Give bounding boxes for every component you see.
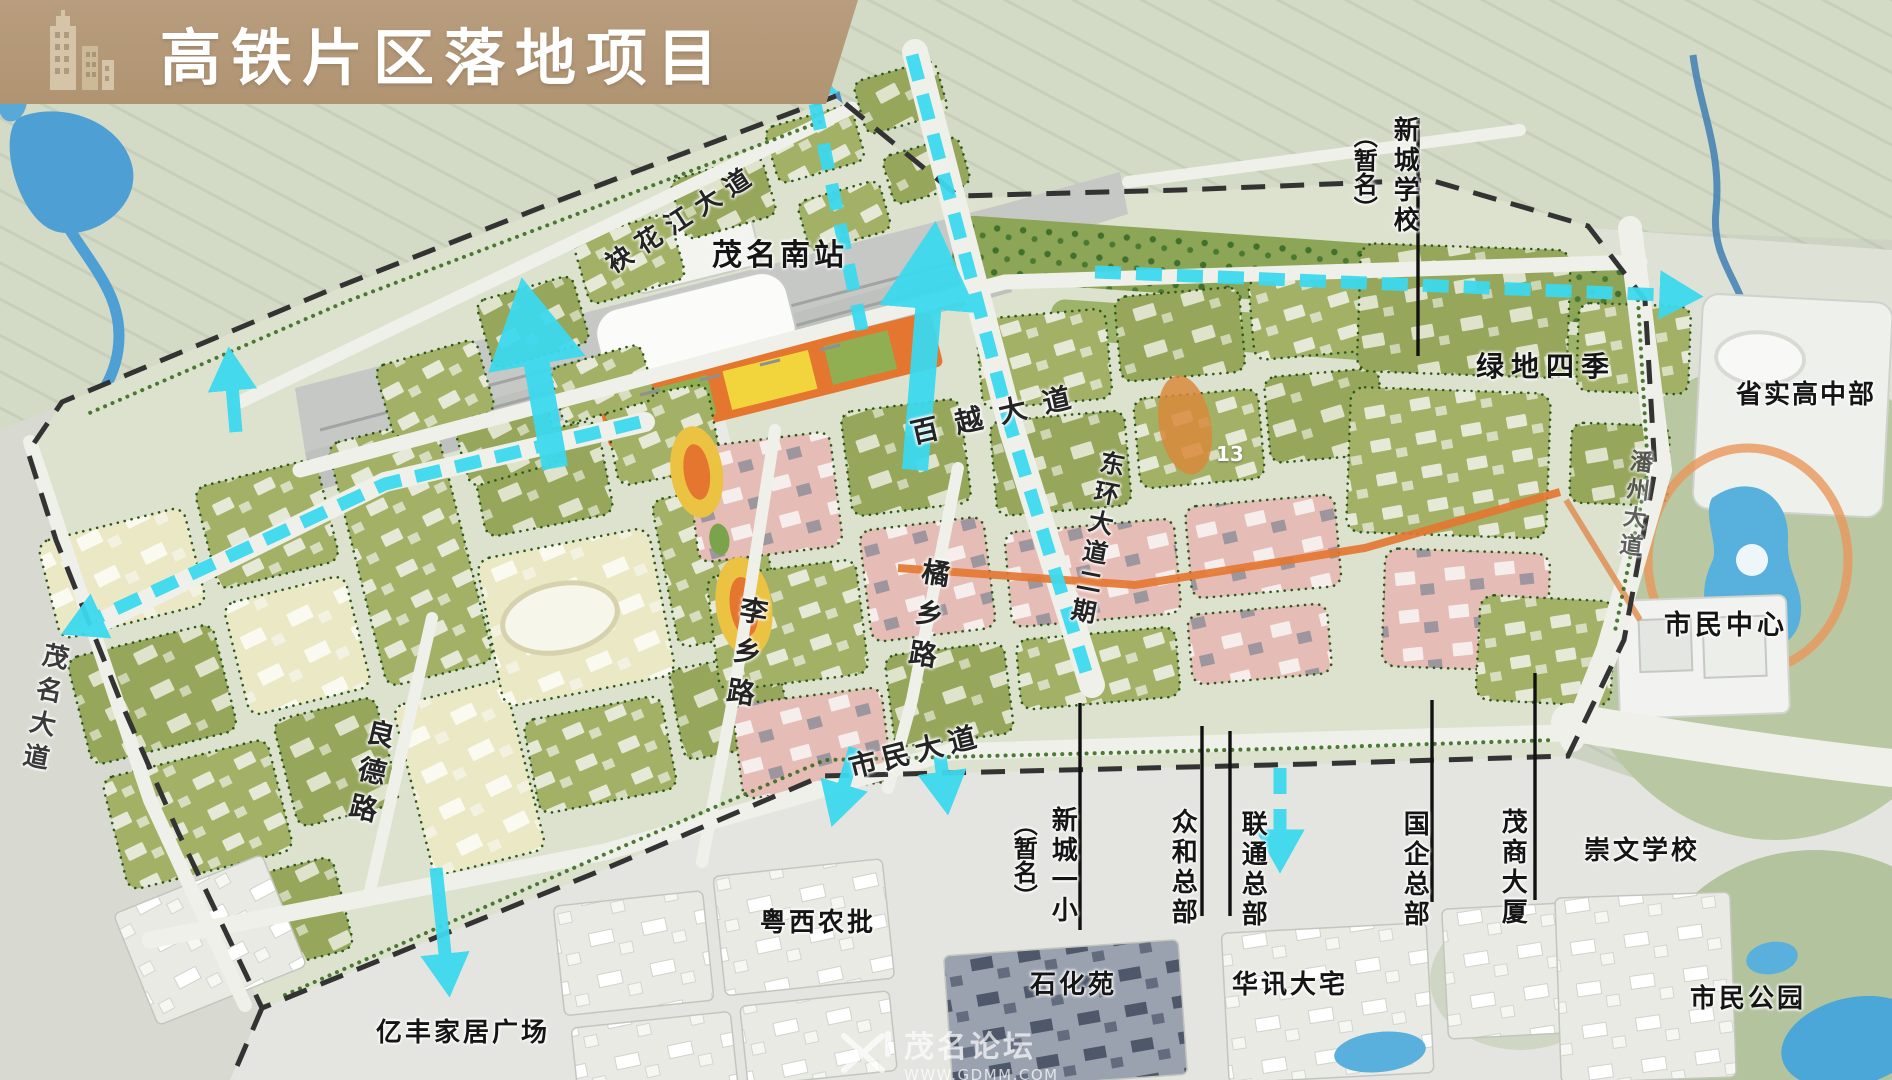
station-label: 茂名南站 bbox=[712, 240, 848, 272]
watermark-site-name: 茂名论坛 bbox=[904, 1022, 1059, 1066]
callout-maoshang-tower: 茂商大厦 bbox=[1498, 808, 1525, 928]
place-label-provincial-high-school: 省实高中部 bbox=[1736, 382, 1876, 409]
callout-zhonghe-hq: 众和总部 bbox=[1168, 808, 1195, 928]
place-label-citizen-center: 市民中心 bbox=[1664, 612, 1788, 640]
callout-xincheng-primary-name: 新城一小 bbox=[1048, 806, 1075, 926]
callout-xincheng-school-note: （暂名） bbox=[1350, 124, 1375, 220]
callout-liantong-hq: 联通总部 bbox=[1238, 810, 1265, 930]
place-label-yuexi-agri-wholesale: 粤西农批 bbox=[760, 910, 876, 937]
watermark-site-url: WWW.GDMM.COM bbox=[904, 1066, 1059, 1080]
watermark-logo-icon bbox=[836, 1028, 894, 1078]
place-label-shihua-garden: 石化苑 bbox=[1030, 972, 1117, 999]
place-label-yifeng-home-plaza: 亿丰家居广场 bbox=[376, 1020, 550, 1047]
place-label-citizen-park: 市民公园 bbox=[1690, 986, 1806, 1013]
callout-xincheng-school-name: 新城学校 bbox=[1390, 116, 1417, 236]
master-plan-screenshot: 茂名南站 袂花江大道 百越大道 东环大道二期 李乡路 橘乡路 良德路 市民大道 … bbox=[0, 0, 1892, 1080]
watermark: 茂名论坛 WWW.GDMM.COM bbox=[836, 1022, 1059, 1080]
page-title: 高铁片区落地项目 bbox=[160, 8, 728, 97]
plot-number-marker: 13 bbox=[1216, 442, 1244, 466]
buildings-icon bbox=[28, 8, 120, 96]
place-label-greenland-four-seasons: 绿地四季 bbox=[1476, 352, 1616, 381]
place-label-huaxun-mansion: 华讯大宅 bbox=[1232, 972, 1348, 999]
callout-guoqi-hq: 国企总部 bbox=[1400, 810, 1427, 930]
map-canvas bbox=[0, 0, 1892, 1080]
title-banner: 高铁片区落地项目 bbox=[0, 0, 858, 104]
callout-xincheng-primary-note: （暂名） bbox=[1010, 812, 1035, 908]
place-label-chongwen-school: 崇文学校 bbox=[1584, 838, 1700, 865]
